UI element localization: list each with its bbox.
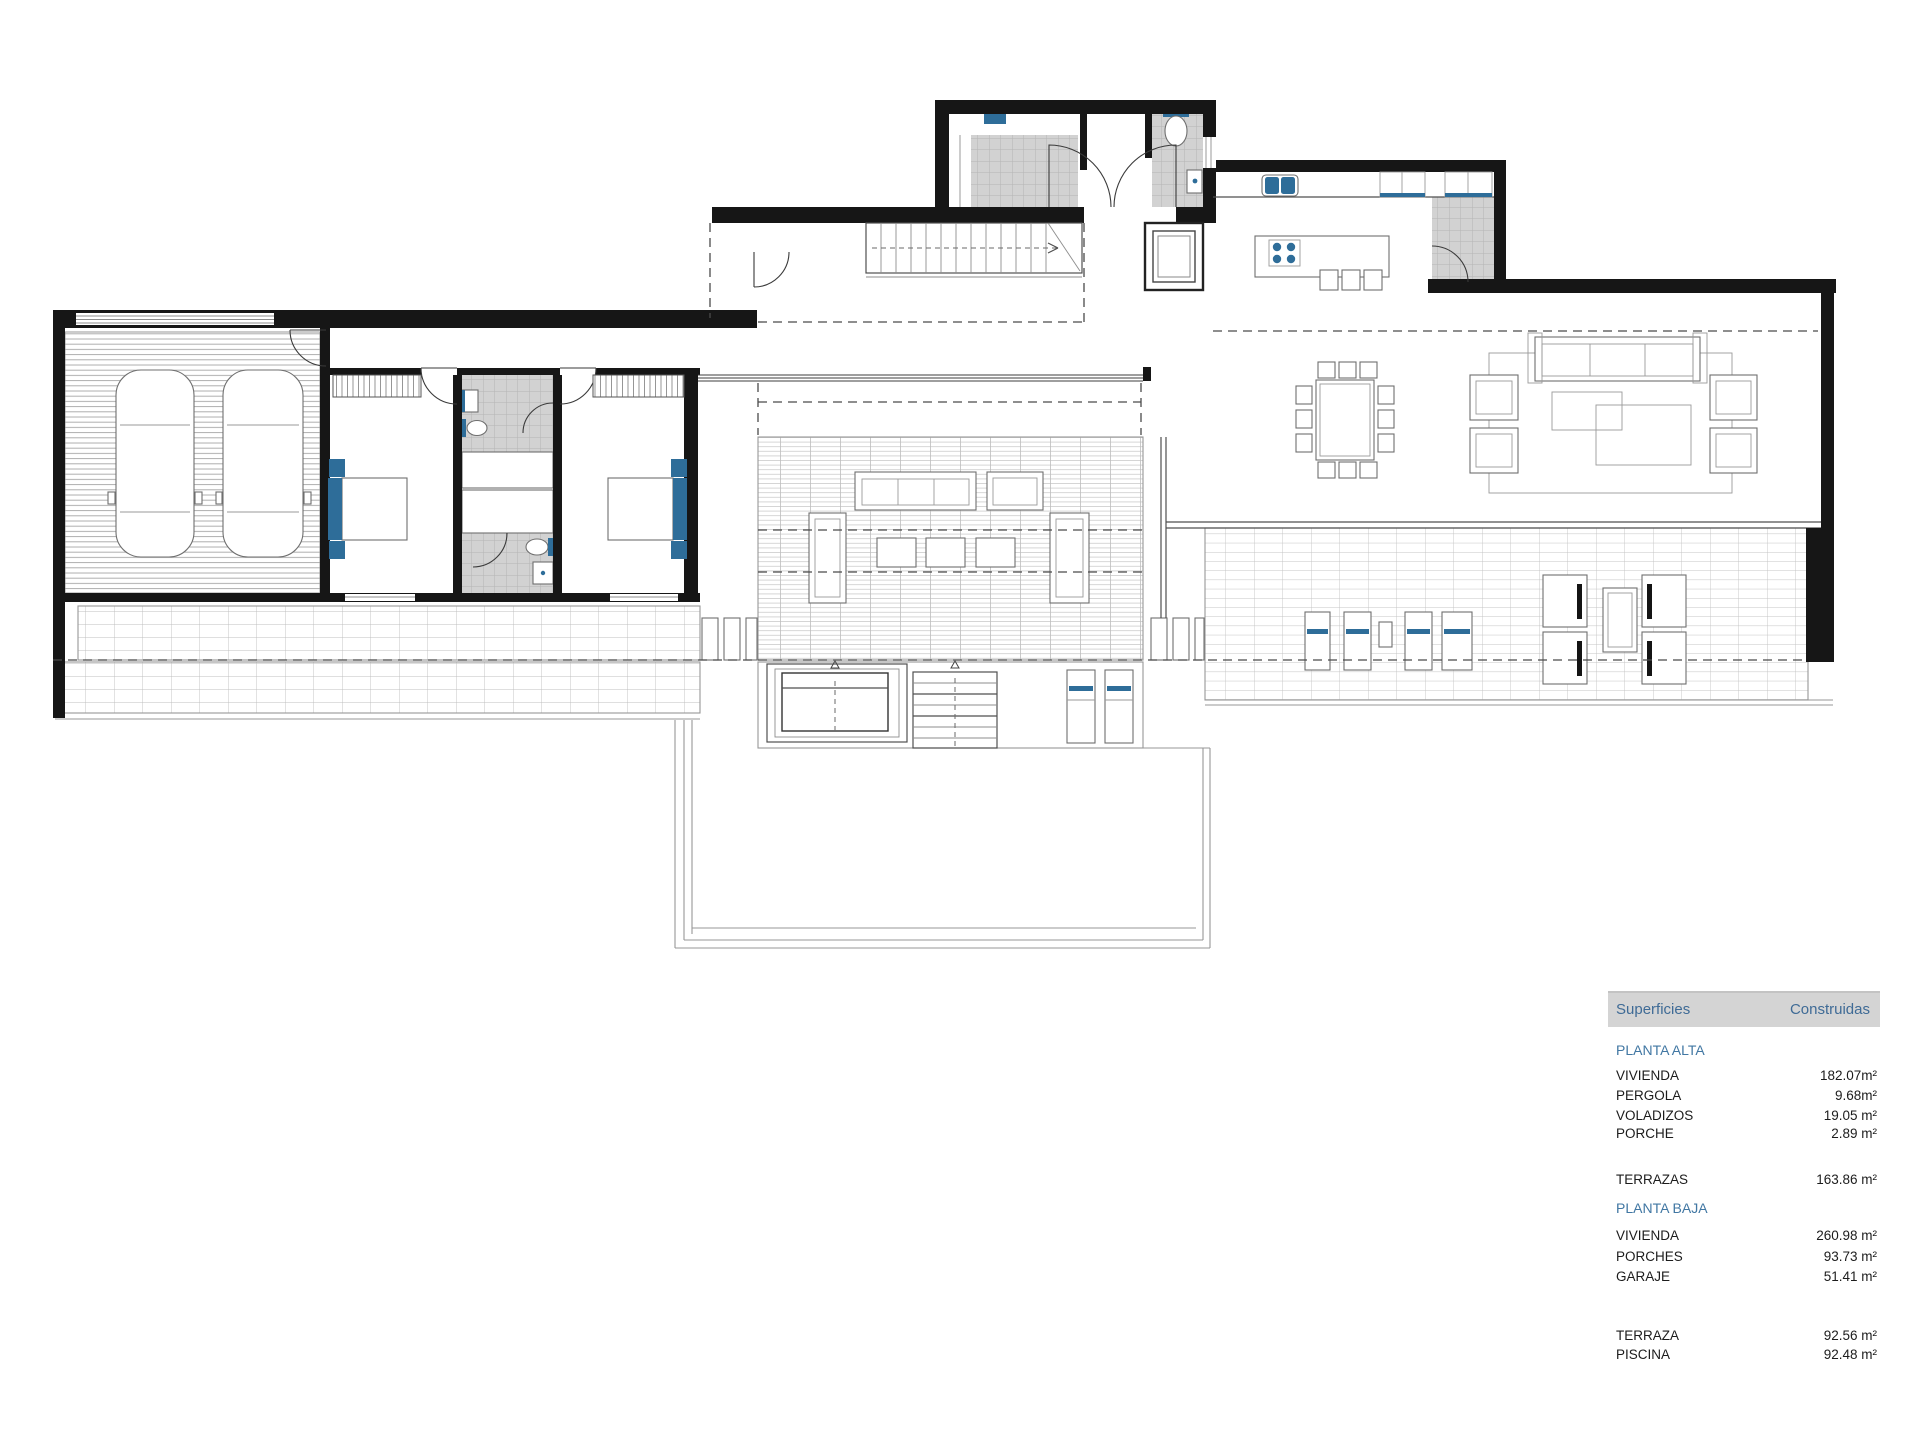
pillow [671, 459, 687, 477]
coffee-table [1596, 405, 1691, 465]
table-row: VIVIENDA260.98 m² [1608, 1228, 1880, 1246]
elevator [1145, 223, 1203, 290]
table-row: PORCHES93.73 m² [1608, 1249, 1880, 1267]
side-table [1379, 622, 1392, 647]
kitchen-pantry-bath [1432, 197, 1494, 282]
shower-head [984, 114, 1006, 124]
bath2-toilet [526, 539, 548, 555]
right-terrace [1166, 522, 1833, 705]
table-row: VIVIENDA182.07m² [1608, 1068, 1880, 1086]
staircase [866, 223, 1082, 277]
left-terrace [55, 606, 700, 719]
pool [767, 661, 907, 742]
bed [342, 478, 407, 540]
bathroom-block [461, 368, 553, 597]
col-construidas: Construidas [1790, 1001, 1870, 1018]
toilet [1165, 116, 1187, 146]
bed-headboard [328, 478, 342, 540]
bed-headboard [673, 478, 687, 540]
dining-set [1296, 362, 1394, 478]
stool [1364, 270, 1382, 290]
col-superficies: Superficies [1616, 1001, 1690, 1018]
car-1 [116, 370, 194, 557]
bedroom-2 [593, 375, 687, 559]
pillow [329, 541, 345, 559]
surfaces-table-header: Superficies Construidas [1608, 991, 1880, 1027]
pergola-beam [698, 375, 1143, 381]
coffee-table [1552, 392, 1622, 430]
upper-wc-room [1152, 105, 1203, 207]
pool-stairs [913, 661, 997, 748]
lower-terrace-outline [675, 720, 1210, 948]
bath1-toilet [467, 421, 487, 436]
bedroom-1 [328, 375, 421, 559]
drawing-sheet: Superficies Construidas PLANTA ALTA VIVI… [0, 0, 1920, 1440]
table-row: GARAJE51.41 m² [1608, 1269, 1880, 1287]
upper-shower-room [960, 114, 1078, 207]
table-row: PERGOLA9.68m² [1608, 1088, 1880, 1106]
floor-plan-drawing [0, 0, 1920, 1440]
wardrobe [333, 375, 421, 397]
car-2 [223, 370, 303, 557]
table-row: TERRAZA92.56 m² [1608, 1328, 1880, 1346]
section-planta-alta: PLANTA ALTA [1608, 1042, 1880, 1060]
table-row: PORCHE2.89 m² [1608, 1126, 1880, 1144]
stool [1342, 270, 1360, 290]
garage [65, 332, 320, 593]
table-row: VOLADIZOS19.05 m² [1608, 1108, 1880, 1126]
pool-loungers [1067, 670, 1133, 743]
table-row: TERRAZAS163.86 m² [1608, 1172, 1880, 1190]
living-room-set [1470, 333, 1757, 493]
table-row: PISCINA92.48 m² [1608, 1347, 1880, 1365]
stool [1320, 270, 1338, 290]
section-planta-baja: PLANTA BAJA [1608, 1200, 1880, 1218]
wardrobe [593, 375, 684, 397]
bed [608, 478, 673, 540]
pillow [671, 541, 687, 559]
pillow [329, 459, 345, 477]
